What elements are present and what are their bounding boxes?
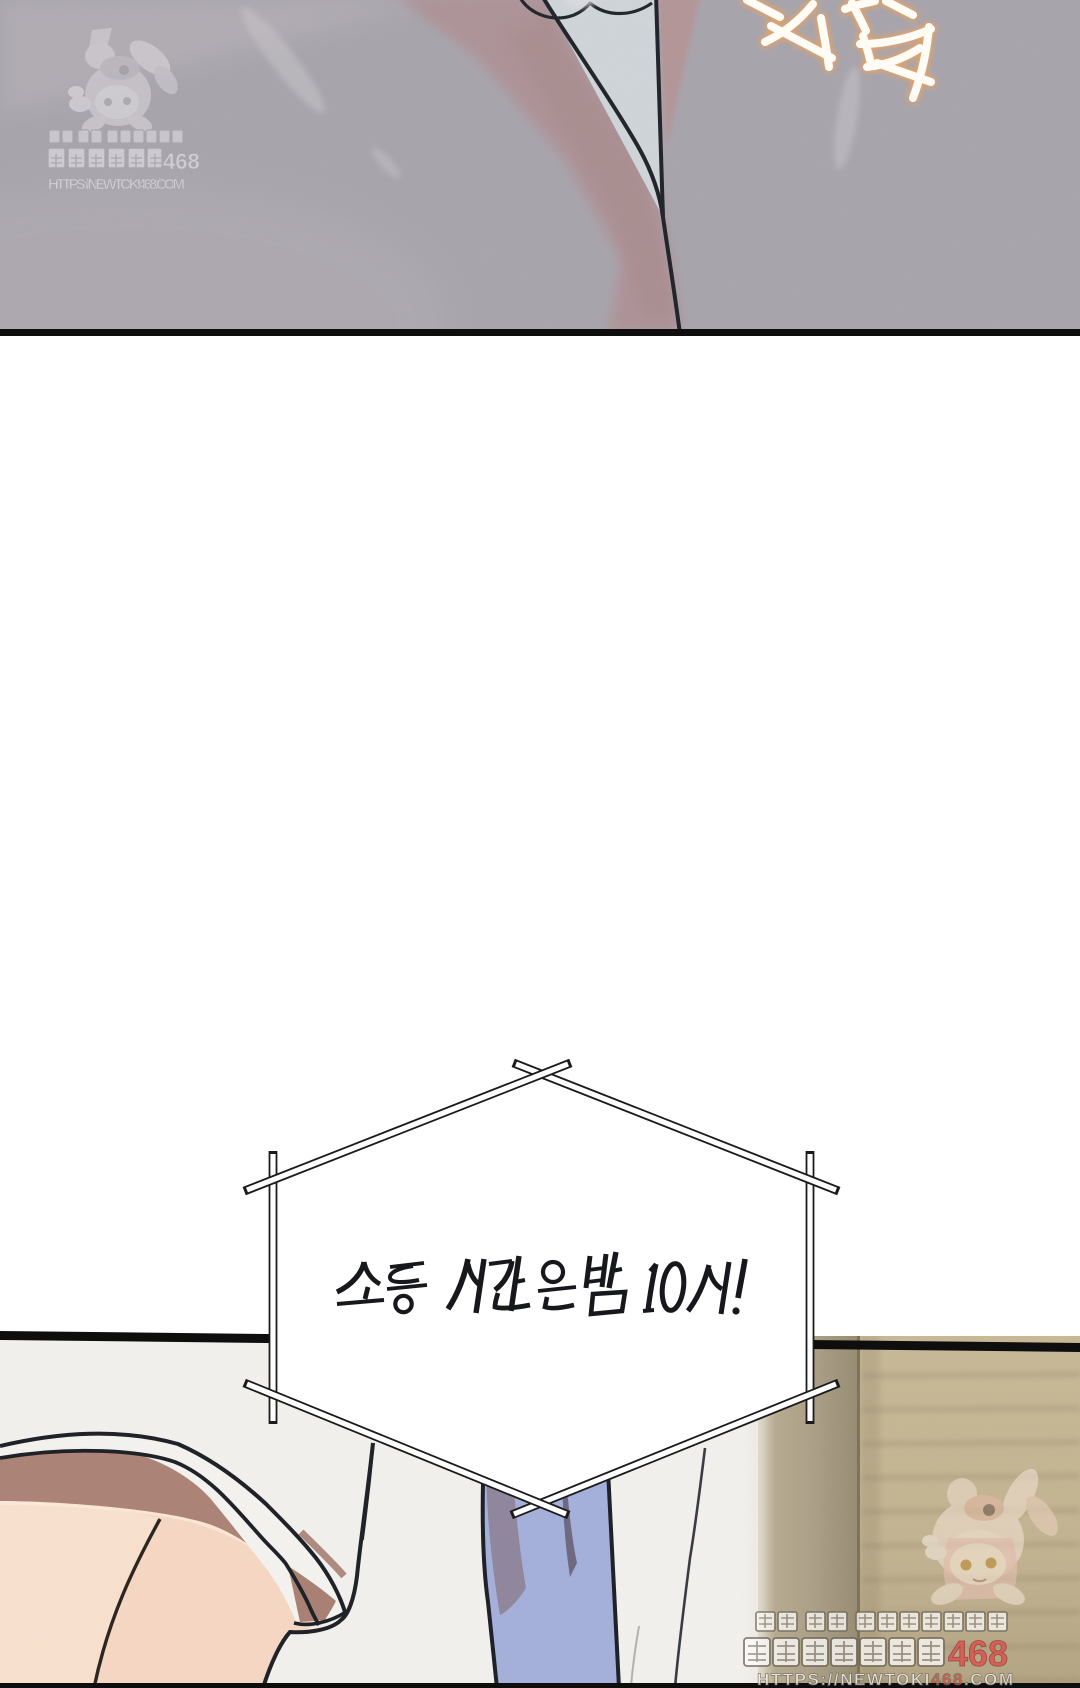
svg-text:468: 468 [948,1633,1008,1674]
svg-text:HTTPS://NEWTOKI468.COM: HTTPS://NEWTOKI468.COM [48,176,185,193]
svg-text:468: 468 [163,149,200,174]
svg-text:HTTPS://NEWTOKI468.COM: HTTPS://NEWTOKI468.COM [757,1670,1013,1688]
